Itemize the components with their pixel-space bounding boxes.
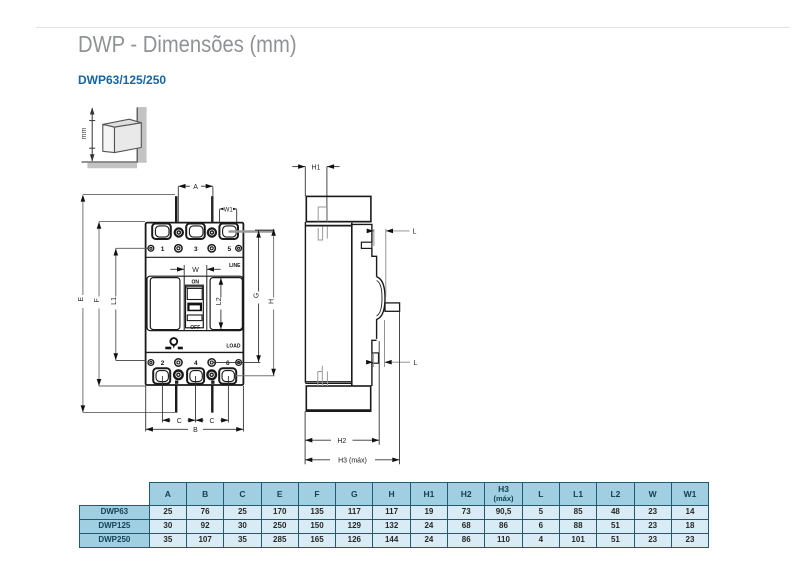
svg-text:2: 2 xyxy=(161,360,165,367)
svg-text:mm: mm xyxy=(81,128,88,140)
svg-text:L: L xyxy=(413,360,417,367)
svg-text:A: A xyxy=(193,184,198,191)
svg-text:3: 3 xyxy=(194,246,198,253)
svg-text:1: 1 xyxy=(161,246,165,253)
svg-text:H: H xyxy=(269,299,276,304)
svg-text:E: E xyxy=(78,297,85,302)
svg-text:L1: L1 xyxy=(111,297,118,305)
svg-text:4: 4 xyxy=(194,360,198,367)
svg-text:W: W xyxy=(192,267,199,274)
svg-text:L: L xyxy=(413,229,417,236)
svg-text:W1: W1 xyxy=(224,207,234,213)
svg-text:G: G xyxy=(254,293,261,298)
svg-text:ON: ON xyxy=(192,279,200,285)
svg-text:6: 6 xyxy=(226,360,230,367)
svg-text:C: C xyxy=(177,418,182,425)
svg-text:OFF: OFF xyxy=(190,325,200,331)
svg-text:C: C xyxy=(209,418,214,425)
svg-text:L2: L2 xyxy=(216,297,223,305)
svg-text:H2: H2 xyxy=(337,438,346,445)
svg-text:H1: H1 xyxy=(312,164,321,171)
svg-text:LINE: LINE xyxy=(229,263,241,269)
svg-text:5: 5 xyxy=(227,246,231,253)
svg-text:B: B xyxy=(193,427,198,434)
svg-text:H3 (máx): H3 (máx) xyxy=(338,458,367,465)
svg-text:F: F xyxy=(94,298,101,302)
svg-text:LOAD: LOAD xyxy=(226,344,241,350)
